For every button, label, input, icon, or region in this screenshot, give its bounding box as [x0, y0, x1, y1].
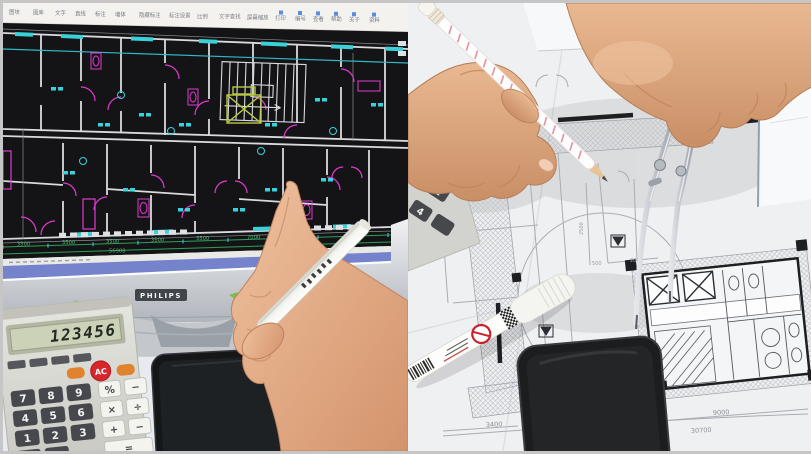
svg-text:4: 4: [21, 413, 30, 426]
menu-item: 文字: [55, 9, 66, 17]
svg-text:×: ×: [107, 405, 116, 417]
dim-label: 3500: [106, 239, 119, 245]
menu-item: 编号: [295, 14, 306, 22]
svg-text:3: 3: [79, 427, 88, 440]
svg-text:2: 2: [51, 430, 60, 443]
dim-label: 3500: [151, 238, 164, 244]
svg-text:7: 7: [19, 393, 28, 406]
dim-label: 3500: [62, 240, 75, 246]
dim-9000: 9000: [713, 408, 730, 417]
calculator: 123456 AC 7 8 9 4 5 6 1 2 3 00 . % − ×: [3, 296, 155, 451]
svg-text:1: 1: [23, 433, 32, 446]
dim-total-label: 56908: [109, 248, 126, 254]
svg-text:PHILIPS: PHILIPS: [140, 292, 182, 300]
menu-item: 标注设置: [169, 12, 191, 20]
dim-vertical: 2500: [579, 222, 585, 235]
dim-500: 500: [592, 261, 602, 267]
svg-text:AC: AC: [94, 367, 107, 377]
svg-text:6: 6: [77, 407, 86, 420]
menu-item: 文字查找: [219, 13, 241, 21]
dim-30700: 30700: [691, 426, 712, 435]
svg-text:÷: ÷: [133, 402, 142, 414]
menu-item: 资料: [369, 16, 380, 24]
menu-item: 帮助: [331, 15, 342, 23]
dim-label: 7000: [247, 235, 260, 241]
dim-label: 3500: [196, 236, 209, 242]
menu-item: 屏幕缩放: [247, 13, 269, 21]
menu-item: 查看: [313, 15, 324, 23]
photo-collage: 图块 图库 文字 直线 标注 墙体 隐藏标注 标注设置 比例 文字查找 屏幕缩放…: [0, 0, 811, 454]
right-photo-blueprint: 3400 9000 30700 500 200 2500 0 1 4: [408, 3, 811, 451]
svg-text:−: −: [131, 382, 140, 394]
menu-item: 标注: [95, 10, 106, 18]
menu-item: 关于: [349, 16, 360, 24]
svg-text:%: %: [104, 385, 115, 397]
dim-3400: 3400: [486, 420, 503, 429]
smartphone-right: [516, 335, 678, 451]
philips-logo: PHILIPS: [135, 289, 187, 301]
menu-item: 直线: [75, 10, 86, 18]
menu-item: 墙体: [115, 11, 126, 19]
svg-text:5: 5: [49, 410, 58, 423]
menu-item: 比例: [197, 12, 208, 20]
svg-text:9: 9: [75, 387, 84, 400]
menu-item: 图块: [9, 8, 20, 16]
svg-text:=: =: [124, 443, 133, 451]
knuckle-highlight: [593, 41, 673, 85]
menu-item: 打印: [275, 14, 286, 22]
menu-item: 图库: [33, 9, 44, 17]
left-photo-cad-workstation: 图块 图库 文字 直线 标注 墙体 隐藏标注 标注设置 比例 文字查找 屏幕缩放…: [3, 3, 408, 451]
menu-item: 隐藏标注: [139, 11, 161, 19]
dim-label: 3500: [17, 242, 30, 248]
svg-text:−: −: [135, 422, 144, 434]
svg-text:8: 8: [47, 390, 56, 403]
svg-text:+: +: [109, 424, 118, 436]
